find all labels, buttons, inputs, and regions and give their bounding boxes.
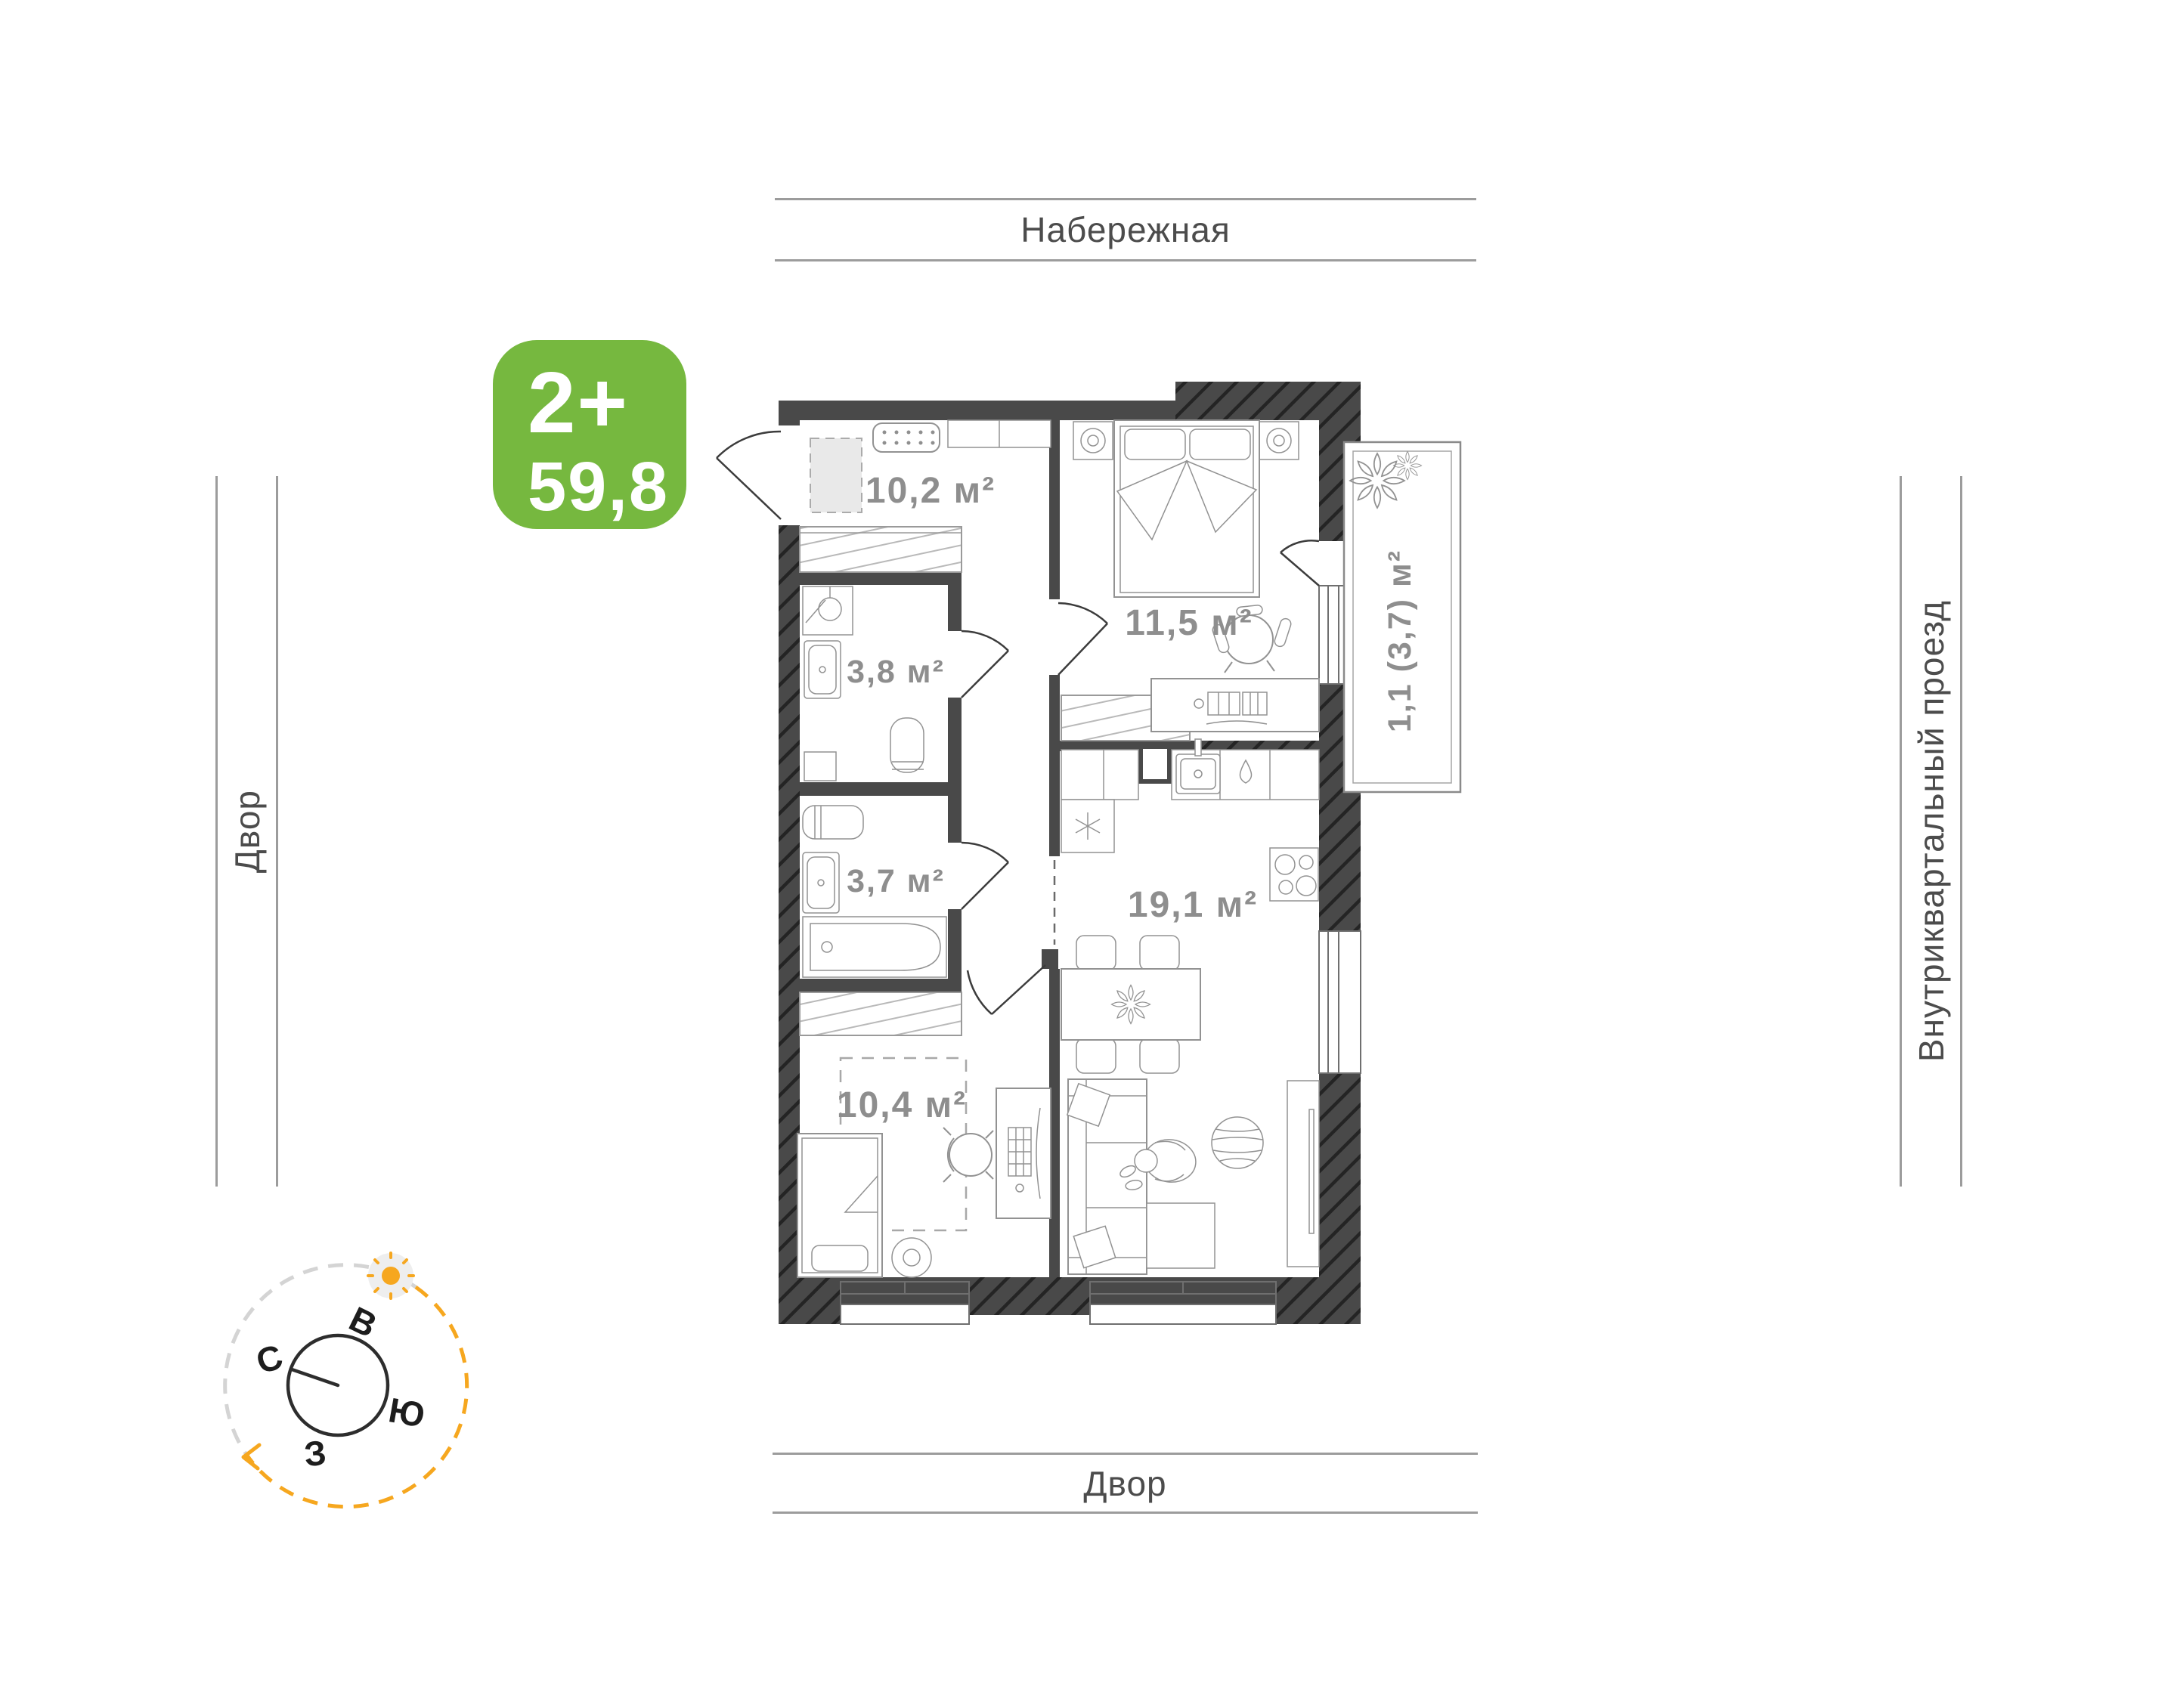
tv-console-icon xyxy=(1287,1081,1319,1267)
entrance-door xyxy=(717,432,781,519)
rug-icon xyxy=(1212,1117,1263,1168)
room-hallway: 10,2 м² xyxy=(810,420,1051,512)
street-label-top: Набережная xyxy=(775,198,1476,261)
washing-machine-icon xyxy=(803,586,853,635)
bathroom-door xyxy=(962,631,1008,698)
room-bedroom-second: 10,4 м² xyxy=(797,1058,1051,1277)
street-label-right-text: Внутриквартальный проезд xyxy=(1911,600,1952,1062)
hob-icon xyxy=(1270,848,1318,901)
street-label-bottom: Двор xyxy=(773,1453,1478,1514)
chair-icon xyxy=(943,1128,993,1182)
compass: С В Ю З xyxy=(197,1209,514,1542)
badge-total-area: 59,8 xyxy=(528,447,669,527)
badge-room-count: 2+ xyxy=(528,354,629,453)
compass-south-label: Ю xyxy=(386,1390,428,1434)
sofa-icon xyxy=(1067,1079,1215,1274)
radiator-icon xyxy=(803,806,863,839)
hall-cabinet-icon xyxy=(948,420,1051,447)
double-bed-icon xyxy=(1114,420,1259,597)
balcony-area-label: 1,1 (3,7) м² xyxy=(1382,549,1418,732)
balcony-door xyxy=(1280,540,1319,586)
bedroom-second-door xyxy=(968,965,1045,1014)
desk-icon xyxy=(1151,679,1319,732)
compass-west-label: З xyxy=(302,1433,328,1474)
dining-table-icon xyxy=(1061,936,1200,1073)
room-hallway-area-label: 10,2 м² xyxy=(866,471,996,511)
street-label-top-text: Набережная xyxy=(1020,209,1231,250)
balcony: 1,1 (3,7) м² xyxy=(1344,442,1460,792)
bathroom-second-door xyxy=(962,843,1008,909)
room-bedroom-main: 11,5 м² xyxy=(1073,420,1319,732)
room-bathroom-second: 3,7 м² xyxy=(803,806,946,977)
compass-north-label: С xyxy=(252,1336,288,1382)
shoe-bench-icon xyxy=(873,423,940,452)
street-label-right: Внутриквартальный проезд xyxy=(1900,476,1962,1187)
nightstand-icon xyxy=(1073,422,1113,459)
sun-path-arrow-icon xyxy=(243,1445,259,1468)
wardrobe-icon xyxy=(810,438,862,512)
street-label-left-text: Двор xyxy=(227,790,268,873)
room-bathroom-second-area-label: 3,7 м² xyxy=(847,863,945,899)
desk-icon xyxy=(996,1088,1051,1218)
bathtub-icon xyxy=(803,917,946,977)
sink-icon xyxy=(803,852,839,913)
room-kitchen-living-area-label: 19,1 м² xyxy=(1128,885,1258,925)
street-label-bottom-text: Двор xyxy=(1083,1463,1166,1504)
floor-plan-page: Набережная Двор Двор Внутриквартальный п… xyxy=(0,0,2177,1708)
room-bedroom-second-area-label: 10,4 м² xyxy=(837,1085,967,1125)
street-label-left: Двор xyxy=(215,476,278,1187)
floor-plan: 10,2 м² 3,8 м² xyxy=(711,374,1474,1334)
room-bathroom: 3,8 м² xyxy=(803,586,945,781)
nightstand-icon xyxy=(1259,422,1299,459)
toilet-icon xyxy=(890,718,924,772)
apartment-type-badge: 2+ 59,8 xyxy=(493,340,686,529)
sun-icon xyxy=(368,1253,413,1298)
bedroom-main-door xyxy=(1058,603,1107,675)
room-bathroom-area-label: 3,8 м² xyxy=(847,654,945,690)
single-bed-icon xyxy=(797,1134,882,1277)
room-bedroom-main-area-label: 11,5 м² xyxy=(1125,603,1253,643)
shaft-box xyxy=(804,752,836,781)
sink-icon xyxy=(804,641,841,698)
room-kitchen-living: 19,1 м² xyxy=(1061,739,1319,1274)
floor-lamp-icon xyxy=(892,1238,931,1277)
window-living-east xyxy=(1319,931,1361,1073)
fridge-icon xyxy=(1061,800,1114,852)
